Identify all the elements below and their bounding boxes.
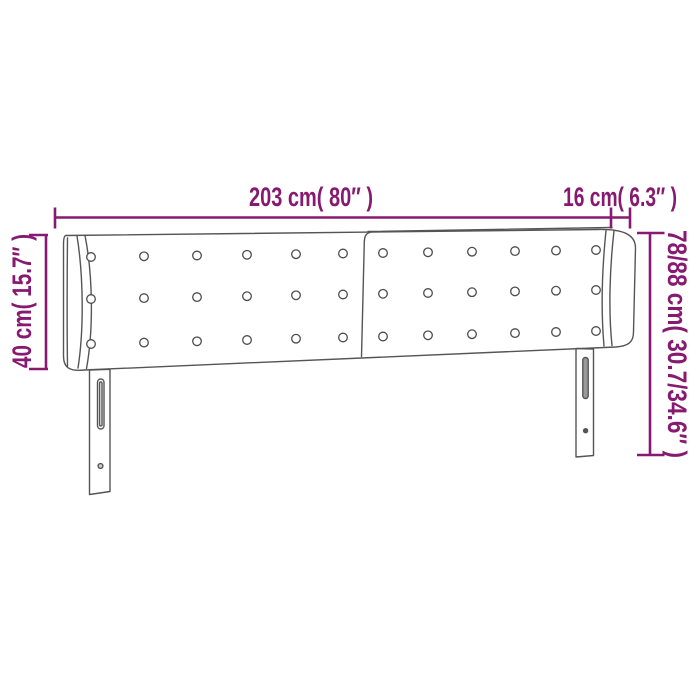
tufting-button [243,336,252,345]
headboard-outline [64,229,636,370]
tufting-button [292,291,301,300]
wing-depth-dimension-label: 16 cm( 6.3″ ) [563,182,677,212]
tufting-button [379,249,388,258]
height-left-dimension-label: 40 cm( 15.7″ ) [7,234,37,368]
tufting-button [424,289,433,298]
left-wing-curve-inner [77,236,82,368]
tufting-button [468,247,477,256]
panel-seam [362,233,371,357]
headboard-drawing [64,228,636,495]
dimension-lines [29,208,665,456]
tufting-button [468,288,477,297]
right-leg-hole [584,429,588,433]
tufting-button [511,287,520,296]
tufting-button [424,331,433,340]
headboard-diagram-svg: 203 cm( 80″ ) 16 cm( 6.3″ ) 40 cm( 15.7″… [0,0,700,700]
height-right-dimension-line [637,233,665,455]
tufting-button [87,340,96,349]
tufting-button [592,246,601,255]
tufting-button [339,290,348,299]
tufting-button [140,252,149,261]
left-leg [90,369,111,494]
tufting-button [87,253,96,262]
tufting-button [339,333,348,342]
tufting-button [552,286,561,295]
tufting-button [193,251,202,260]
tufting-button [552,328,561,337]
right-wing-curve-inner [602,231,606,347]
tufting-button [379,332,388,341]
tufting-button [193,337,202,346]
tufting-button [140,294,149,303]
tufting-button [243,292,252,301]
left-leg-slot-inner [100,382,102,426]
right-leg [576,349,594,458]
tufting-button [552,246,561,255]
tufting-button [292,250,301,259]
left-leg-hole [98,464,103,469]
tufting-button [379,290,388,299]
right-leg-slot [583,358,588,399]
tufting-button [511,329,520,338]
tufting-button [424,248,433,257]
tufting-button [511,247,520,256]
product-dimension-diagram: 203 cm( 80″ ) 16 cm( 6.3″ ) 40 cm( 15.7″… [0,0,700,700]
left-leg-slot [98,379,105,429]
tufting-button [592,286,601,295]
tufting-button [468,330,477,339]
tufting-button [193,293,202,302]
right-wing-curve-face [610,231,614,346]
height-right-dimension-label: 78/88 cm( 30.7/34.6″ ) [662,230,692,458]
tufting-button [292,334,301,343]
tufting-button [243,251,252,260]
tufting-button [339,249,348,258]
tufting-buttons [87,246,601,349]
tufting-button [87,295,96,304]
tufting-button [592,327,601,336]
width-dimension-label: 203 cm( 80″ ) [249,182,373,212]
tufting-button [140,338,149,347]
